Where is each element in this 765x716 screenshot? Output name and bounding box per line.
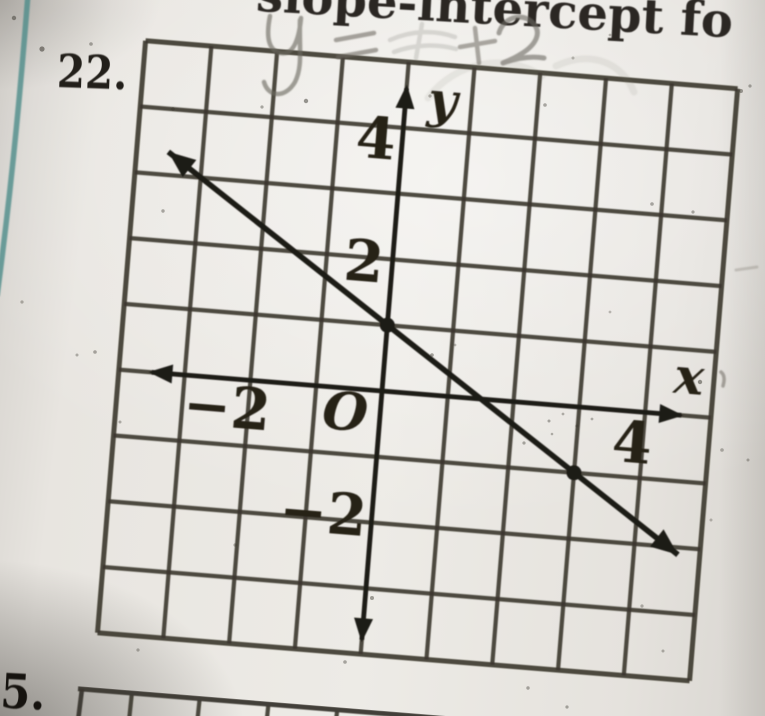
speckle [526, 686, 529, 689]
arrowhead [148, 363, 173, 384]
speckle [543, 103, 547, 107]
grid-line [78, 689, 540, 716]
speckle [233, 543, 236, 546]
speckle [430, 353, 434, 357]
speckle [119, 421, 122, 424]
speckle [12, 16, 16, 20]
speckle [260, 105, 263, 108]
speckle [747, 459, 750, 462]
arrowhead [395, 84, 416, 109]
grid-line [76, 689, 82, 716]
speckle [710, 519, 713, 522]
grid-line [124, 304, 716, 352]
grid-line [98, 633, 690, 681]
grid-line [127, 695, 132, 716]
speckle [39, 46, 44, 51]
speckle [576, 425, 579, 428]
speckle [650, 202, 654, 206]
arrowhead [659, 404, 684, 425]
speckle [662, 650, 665, 653]
grid-line [295, 57, 343, 649]
speckle [748, 84, 751, 87]
speckle [609, 34, 612, 37]
grid-line [264, 706, 269, 716]
erased-term-smudge [390, 24, 456, 58]
pencil-dash-mark [736, 267, 757, 270]
coordinate-grid: 42−2−24Oxy [98, 41, 738, 681]
grid-line [558, 78, 606, 670]
x-tick-label: 4 [610, 408, 655, 478]
next-problem-grid [74, 689, 540, 716]
speckle [609, 311, 612, 314]
speckle [93, 350, 97, 354]
y-tick-label: 4 [353, 104, 398, 174]
speckle [136, 648, 139, 651]
grid-line [98, 41, 146, 633]
speckle [739, 89, 743, 93]
arrowhead [352, 618, 373, 643]
speckle [89, 42, 93, 46]
speckle [572, 57, 575, 60]
origin-label: O [320, 380, 370, 444]
textbook-page-photo: slope-intercept fo 22. 25. 42−2−24Oxy [0, 0, 765, 716]
x-axis-label: x [671, 346, 708, 407]
handwritten-plus [460, 28, 495, 63]
speckle [20, 300, 23, 303]
grid-line [492, 73, 540, 665]
speckle [691, 210, 694, 213]
speckle [161, 209, 164, 212]
grid-line [229, 51, 277, 643]
grid-line [163, 46, 211, 638]
speckle [454, 344, 457, 347]
notebook-margin-line [0, 0, 28, 296]
speckle [370, 596, 374, 600]
handwritten-2 [499, 17, 544, 63]
speckle [562, 413, 565, 416]
speckle [565, 705, 568, 708]
speckle [428, 94, 431, 97]
speckle [76, 354, 79, 357]
speckle [304, 99, 308, 103]
y-tick-label: −2 [277, 476, 370, 550]
grid-line [130, 238, 722, 286]
speckle [640, 604, 643, 607]
speckle [720, 448, 724, 452]
page-figure: 42−2−24Oxy [0, 0, 765, 716]
speckle [343, 660, 347, 664]
speckle [548, 420, 551, 423]
grid-line [624, 83, 672, 675]
speckle [522, 441, 525, 444]
handwritten-equals [336, 33, 376, 57]
y-tick-label: 2 [342, 227, 387, 297]
grid-line [108, 501, 700, 549]
grid-line [195, 700, 200, 716]
grid-line [332, 712, 337, 716]
grid-line [103, 567, 695, 615]
apostrophe-mark [721, 372, 724, 386]
speckle [591, 418, 594, 421]
x-tick-label: −2 [181, 371, 274, 445]
speckle [171, 107, 175, 111]
speckle [698, 380, 702, 384]
speckle [551, 433, 554, 436]
